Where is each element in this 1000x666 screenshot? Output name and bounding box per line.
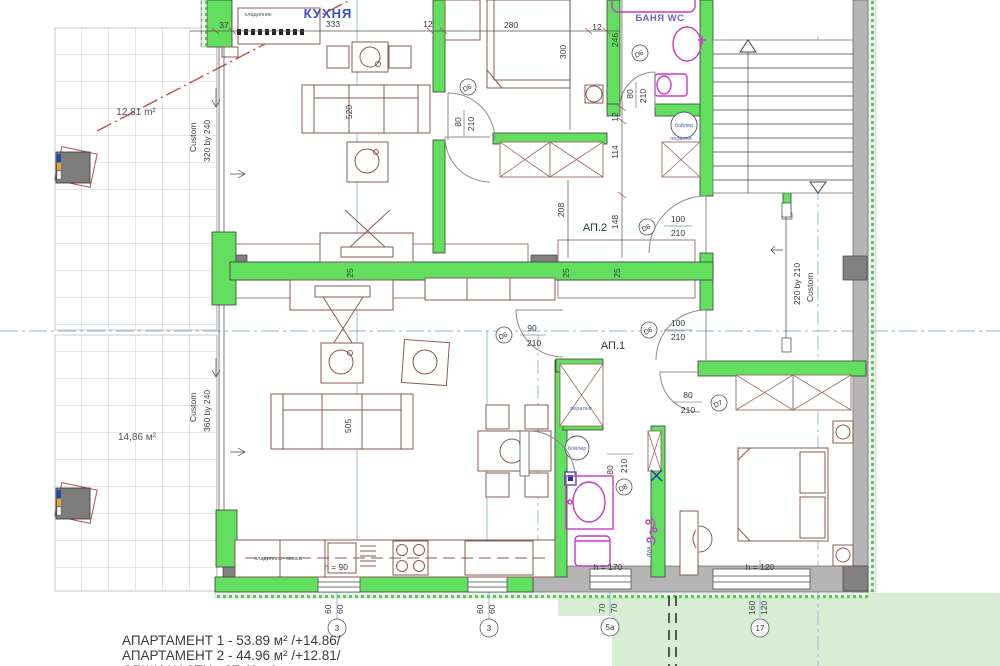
window-bedroom (713, 569, 810, 589)
svg-text:60: 60 (487, 604, 497, 614)
svg-text:70: 70 (597, 603, 607, 613)
svg-text:120: 120 (759, 601, 769, 615)
door-living (516, 310, 563, 357)
dim-208: 208 (556, 203, 566, 217)
bath-ap1 (565, 436, 662, 566)
svg-text:60: 60 (475, 604, 485, 614)
wardrobe-2 (793, 375, 851, 410)
svg-text:90: 90 (527, 323, 537, 333)
axis-marker-2: 60 60 3 (475, 604, 498, 637)
svg-text:210: 210 (619, 459, 629, 473)
bedroom-ap1 (680, 421, 853, 575)
svg-text:210: 210 (466, 117, 476, 131)
bath-window-height: h = 170 (594, 562, 623, 572)
washer-ap2 (662, 142, 700, 177)
svg-text:17: 17 (756, 624, 765, 633)
bedroom-window-height: h = 120 (746, 562, 775, 572)
washer-ap2-label: пералня (670, 136, 691, 142)
door-kitchen (448, 93, 495, 140)
svg-text:5a: 5a (606, 623, 615, 632)
dim-148: 148 (610, 215, 620, 229)
wardrobe-1 (736, 375, 793, 410)
legend-line-2: АПАРТАМЕНТ 2 - 44.96 м² /+12.81/ (122, 648, 341, 663)
svg-text:3: 3 (487, 624, 492, 633)
living-furniture (235, 278, 555, 577)
closet-ap2-2 (550, 142, 603, 177)
svg-text:210: 210 (638, 89, 648, 103)
dim-280: 280 (504, 20, 518, 30)
dim-300: 300 (558, 45, 568, 59)
legend-line-1: АПАРТАМЕНТ 1 - 53.89 м² /+14.86/ (122, 633, 341, 648)
label-ap2: АП.2 (583, 222, 607, 234)
kitchen-sofa (302, 85, 430, 133)
armchair-2 (402, 340, 450, 386)
window-bath (590, 569, 631, 589)
hall-opening-size: 220 by 210 (792, 263, 802, 305)
svg-text:210: 210 (671, 332, 685, 342)
door-dim-bath1: D8 80 210 (605, 454, 633, 495)
dim-505: 505 (343, 419, 353, 433)
svg-text:3: 3 (335, 624, 340, 633)
svg-text:80: 80 (453, 117, 463, 127)
svg-text:70: 70 (609, 603, 619, 613)
dim-333: 333 (326, 19, 340, 29)
staircase (713, 40, 853, 219)
svg-text:210: 210 (527, 338, 541, 348)
window-bottom-1 (318, 577, 360, 592)
kitchen-table (327, 42, 411, 72)
svg-text:210: 210 (671, 228, 685, 238)
terrace-bottom (55, 335, 217, 591)
dim-25a: 25 (345, 268, 355, 278)
kitchen-furniture (237, 8, 430, 262)
dim-25c: 25 (612, 268, 622, 278)
svg-text:80: 80 (625, 89, 635, 99)
dim-114: 114 (610, 145, 620, 159)
living-sofa (271, 394, 413, 449)
door-dim-bedroom: D7 80 210 (674, 390, 727, 415)
shower-label: душ (646, 546, 652, 557)
hall-opening (771, 203, 791, 352)
svg-text:80: 80 (683, 390, 693, 400)
boiler-ap2-label: бойлер (675, 122, 694, 129)
label-ap1: АП.1 (601, 340, 625, 352)
terrace-top-custom: Custom (188, 123, 198, 152)
shaft (648, 431, 661, 471)
floor-plan-drawing: КУХНЯ БАНЯ WC АП.2 АП.1 12,81 m² 14,86 м… (0, 0, 1000, 666)
door-dim-living: D6 90 210 (496, 323, 546, 348)
door-dim-ap2-entry: D6 100 210 (639, 214, 692, 238)
dim-25b: 25 (561, 268, 571, 278)
closet-ap2-1 (500, 142, 550, 177)
svg-text:60: 60 (335, 604, 345, 614)
washer-ap1-label: пералня (570, 406, 591, 412)
armchair-1 (321, 343, 363, 383)
door-bedroom-ap2 (445, 137, 490, 182)
svg-text:100: 100 (671, 318, 685, 328)
dim-520: 520 (344, 105, 354, 119)
kitchen-armchair (347, 142, 388, 182)
svg-text:210: 210 (681, 405, 695, 415)
hall-opening-custom: Custom (805, 273, 815, 302)
label-bath2: БАНЯ WC (636, 13, 685, 24)
boiler-ap1-label: бойлер (568, 445, 587, 452)
dim-37: 37 (219, 20, 229, 30)
dim-12c: 12 (610, 112, 620, 122)
door-dim-ap1-entry: D6 100 210 (641, 318, 692, 342)
door-dim-bath2: D6 80 210 (625, 45, 648, 108)
svg-text:160: 160 (747, 601, 757, 615)
floor-plan: КУХНЯ БАНЯ WC АП.2 АП.1 12,81 m² 14,86 м… (0, 0, 1000, 666)
counter-label: хладилник - мивка (254, 556, 302, 562)
door-dim-kitchen: D6 80 210 (453, 79, 476, 136)
dim-12a: 12 (423, 19, 433, 29)
svg-text:100: 100 (671, 214, 685, 224)
window-bottom-2 (468, 577, 507, 592)
dim-12b: 12 (592, 22, 602, 32)
terrace-top-size: 320 by 240 (202, 120, 212, 162)
counter-mid (425, 278, 555, 300)
dim-246: 246 (610, 33, 620, 47)
washer-ap1 (560, 364, 603, 426)
terrace-bottom-area: 14,86 м² (118, 432, 157, 443)
terrace-bottom-size: 360 by 240 (202, 390, 212, 432)
dining-table (478, 405, 551, 497)
svg-text:80: 80 (605, 465, 615, 475)
terrace-bottom-custom: Custom (188, 393, 198, 422)
counter-height: h = 90 (324, 562, 348, 572)
svg-text:60: 60 (323, 604, 333, 614)
tv-unit-kitchen (320, 210, 413, 262)
terrace-top-area: 12,81 m² (116, 107, 156, 118)
fridge-label: хладилник (244, 12, 272, 18)
